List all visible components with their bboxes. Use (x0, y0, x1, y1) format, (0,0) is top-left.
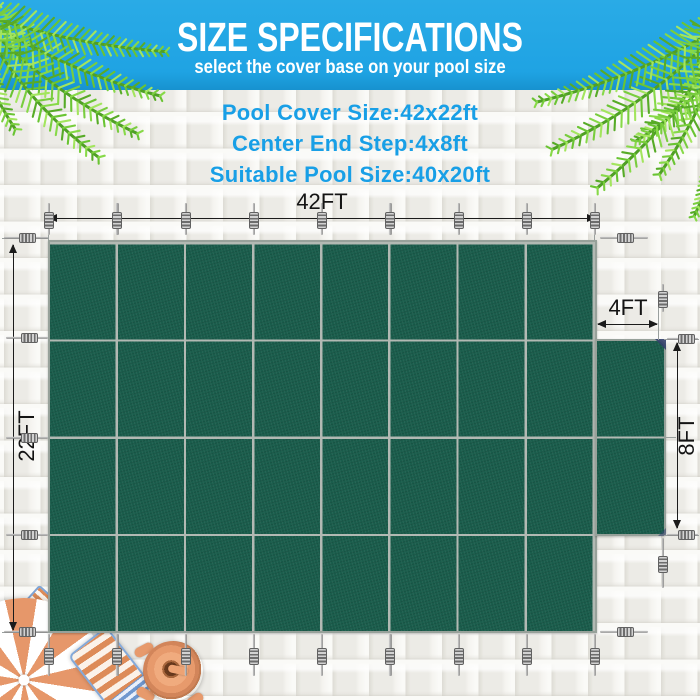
anchor-spring-icon (455, 203, 463, 235)
anchor-spring-icon (523, 634, 531, 676)
anchor-spring-icon (667, 531, 698, 539)
anchor-spring-icon (4, 234, 48, 242)
anchor-spring-icon (386, 634, 394, 676)
header-banner: SIZE SPECIFICATIONS select the cover bas… (0, 0, 700, 90)
anchor-spring-icon (591, 203, 599, 235)
anchor-spring-icon (113, 634, 121, 676)
anchor-spring-icon (4, 628, 48, 636)
spec-lines: Pool Cover Size:42x22ft Center End Step:… (0, 97, 700, 190)
anchor-spring-icon (386, 203, 394, 235)
step-height-dimension-label: 8FT (674, 416, 700, 455)
anchor-spring-icon (6, 531, 48, 539)
anchor-spring-icon (6, 434, 48, 442)
anchor-spring-icon (523, 203, 531, 235)
page-title: SIZE SPECIFICATIONS (77, 14, 623, 61)
spec-pool-cover-size: Pool Cover Size:42x22ft (0, 97, 700, 128)
anchor-spring-icon (6, 334, 48, 342)
anchor-spring-icon (667, 335, 698, 343)
step-width-dimension-arrow (598, 324, 657, 325)
anchor-spring-icon (591, 634, 599, 676)
center-end-step-panel (595, 339, 666, 536)
anchor-spring-icon (45, 634, 53, 676)
anchor-spring-icon (600, 234, 648, 242)
anchor-spring-icon (659, 538, 667, 588)
anchor-spring-icon (250, 203, 258, 235)
anchor-spring-icon (455, 634, 463, 676)
page-subtitle: select the cover base on your pool size (42, 57, 658, 79)
swim-ring-icon (134, 639, 206, 700)
anchor-spring-icon (318, 203, 326, 235)
pool-cover-size-infographic: SIZE SPECIFICATIONS select the cover bas… (0, 0, 700, 700)
spec-suitable-pool-size: Suitable Pool Size:40x20ft (0, 159, 700, 190)
anchor-spring-icon (113, 203, 121, 235)
pool-cover (48, 240, 597, 633)
anchor-spring-icon (659, 284, 667, 312)
anchor-spring-icon (182, 203, 190, 235)
anchor-spring-icon (45, 203, 53, 235)
spec-center-end-step: Center End Step:4x8ft (0, 128, 700, 159)
anchor-spring-icon (250, 634, 258, 676)
anchor-spring-icon (318, 634, 326, 676)
anchor-spring-icon (600, 628, 648, 636)
corner-patch-icon (655, 339, 666, 350)
step-width-dimension-label: 4FT (608, 295, 647, 321)
anchor-spring-icon (182, 634, 190, 676)
